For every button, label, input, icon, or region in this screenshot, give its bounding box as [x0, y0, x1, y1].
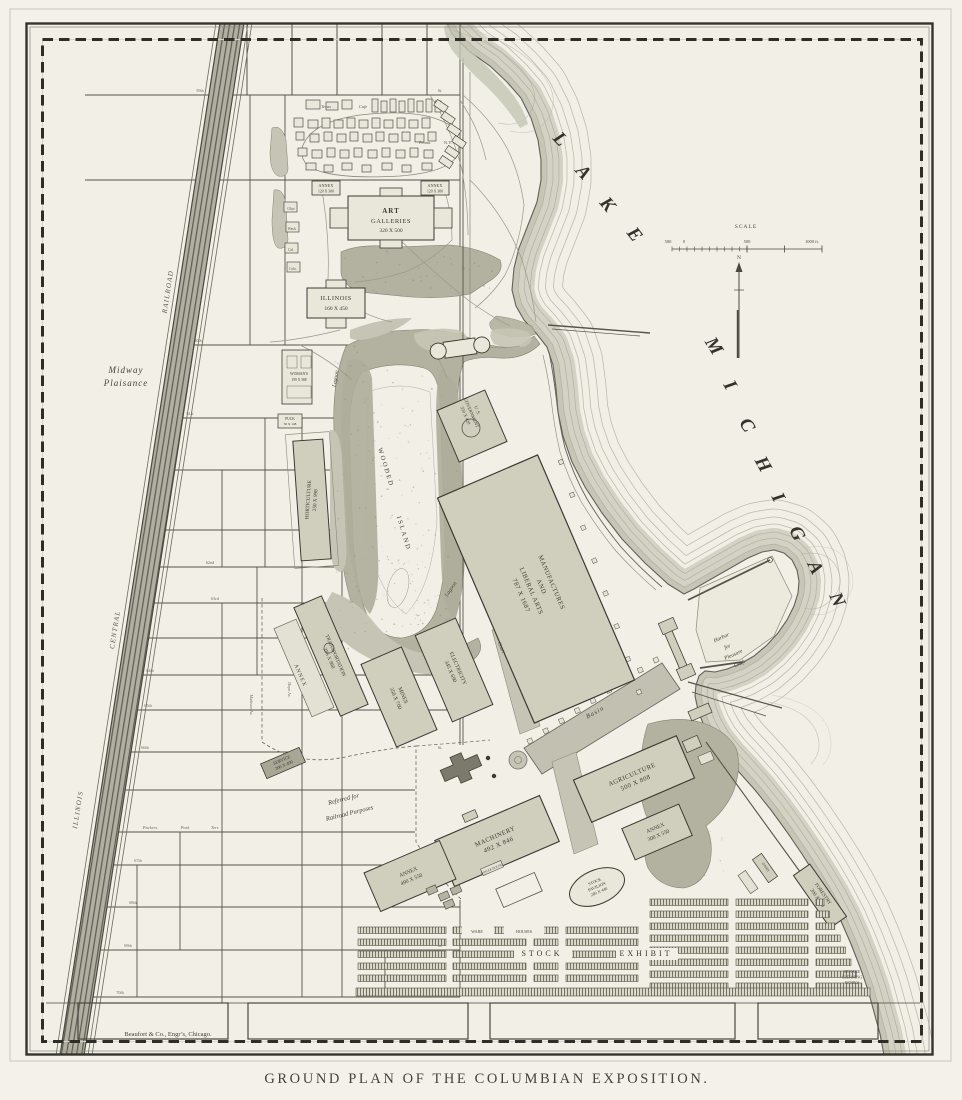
- svg-text:68th: 68th: [129, 900, 137, 905]
- svg-text:1000 ft.: 1000 ft.: [805, 239, 819, 244]
- svg-text:Terr.: Terr.: [211, 825, 219, 830]
- svg-text:Wash.: Wash.: [288, 227, 297, 231]
- svg-text:320 X 500: 320 X 500: [379, 228, 402, 234]
- svg-text:Hope Av.: Hope Av.: [287, 682, 292, 698]
- svg-text:Texas: Texas: [321, 104, 331, 109]
- svg-text:Plaisance: Plaisance: [103, 378, 149, 388]
- svg-text:GROUND PLAN OF THE COLUMBIAN E: GROUND PLAN OF THE COLUMBIAN EXPOSITION.: [264, 1071, 709, 1087]
- svg-text:ART: ART: [382, 207, 400, 215]
- svg-text:Beaufort & Co., Engr’s, Chicag: Beaufort & Co., Engr’s, Chicago.: [124, 1031, 212, 1038]
- svg-text:St.: St.: [438, 745, 443, 750]
- svg-text:CLEANING: CLEANING: [842, 975, 863, 980]
- svg-text:WORKS: WORKS: [845, 980, 859, 985]
- svg-text:GALLERIES: GALLERIES: [371, 218, 411, 225]
- svg-text:EXHIBIT: EXHIBIT: [620, 949, 673, 958]
- svg-text:SEWAGE: SEWAGE: [844, 969, 861, 974]
- svg-text:SCALE: SCALE: [735, 224, 757, 230]
- svg-text:199 X 388: 199 X 388: [291, 378, 306, 382]
- svg-text:70th: 70th: [116, 990, 124, 995]
- svg-text:WOMAN'S: WOMAN'S: [290, 372, 308, 376]
- svg-text:Penna.: Penna.: [419, 140, 431, 145]
- svg-text:Colo.: Colo.: [289, 267, 297, 271]
- svg-text:ILLINOIS: ILLINOIS: [320, 295, 351, 302]
- svg-text:St.: St.: [438, 88, 443, 93]
- svg-text:N: N: [737, 255, 741, 261]
- svg-text:62nd: 62nd: [206, 560, 215, 565]
- svg-text:STOCK: STOCK: [521, 949, 562, 958]
- svg-text:50 X 148: 50 X 148: [284, 422, 297, 426]
- svg-text:Packers: Packers: [142, 825, 158, 830]
- svg-text:Madison Av.: Madison Av.: [249, 694, 254, 715]
- svg-text:63rd: 63rd: [211, 596, 220, 601]
- svg-text:59th: 59th: [196, 88, 204, 93]
- svg-text:ANNEX: ANNEX: [319, 183, 334, 188]
- svg-text:WARE: WARE: [471, 929, 483, 934]
- svg-text:PUCK: PUCK: [285, 417, 295, 421]
- svg-text:Ohio: Ohio: [287, 207, 294, 211]
- svg-text:120 X 300: 120 X 300: [427, 190, 443, 194]
- svg-text:160 X 450: 160 X 450: [324, 306, 347, 312]
- svg-text:Cal.: Cal.: [288, 248, 294, 252]
- svg-text:Park: Park: [180, 825, 191, 830]
- svg-text:69th: 69th: [124, 943, 132, 948]
- svg-text:HOUSES: HOUSES: [516, 929, 533, 934]
- svg-text:500: 500: [744, 239, 752, 244]
- svg-text:66th: 66th: [141, 745, 149, 750]
- svg-text:Cafe: Cafe: [359, 104, 368, 109]
- svg-text:120 X 300: 120 X 300: [318, 190, 334, 194]
- svg-text:Midway: Midway: [108, 365, 144, 375]
- svg-text:500: 500: [665, 239, 673, 244]
- svg-text:67th: 67th: [134, 858, 142, 863]
- svg-text:N.Y.: N.Y.: [444, 140, 452, 145]
- svg-text:65th: 65th: [144, 703, 152, 708]
- svg-text:ANNEX: ANNEX: [428, 183, 443, 188]
